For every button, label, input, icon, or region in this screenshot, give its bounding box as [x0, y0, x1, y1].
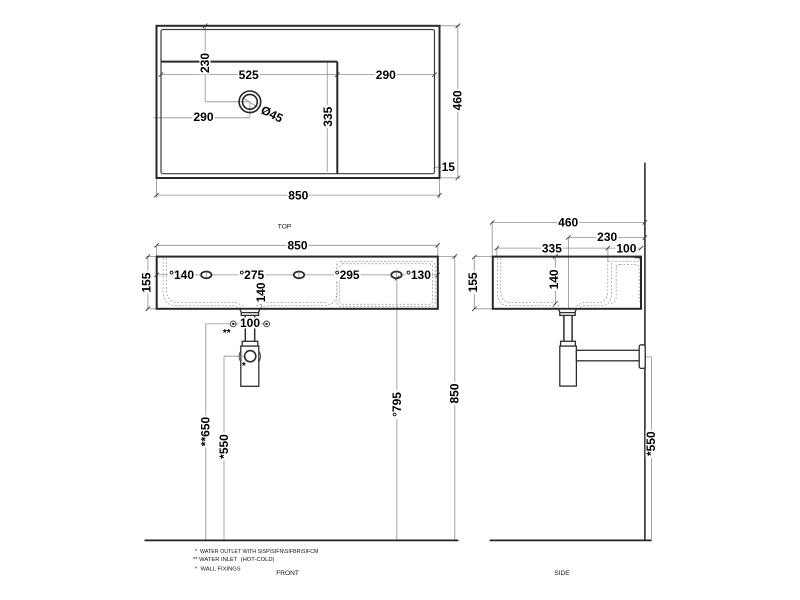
- svg-text:SIDE: SIDE: [554, 570, 570, 577]
- svg-text:°295: °295: [335, 268, 360, 282]
- svg-text:230: 230: [597, 230, 617, 244]
- svg-text:290: 290: [193, 110, 213, 124]
- svg-text:°140: °140: [169, 268, 194, 282]
- svg-text:TOP: TOP: [278, 224, 292, 231]
- svg-text:155: 155: [466, 272, 480, 292]
- svg-text:°795: °795: [390, 392, 404, 417]
- svg-text:460: 460: [451, 90, 465, 110]
- svg-text:100: 100: [616, 241, 636, 255]
- svg-text:°130: °130: [406, 268, 431, 282]
- svg-text:460: 460: [558, 216, 578, 230]
- svg-text:140: 140: [547, 269, 561, 289]
- svg-text:** WATER INLET (HOT-COLD): ** WATER INLET (HOT-COLD): [193, 557, 275, 563]
- svg-text:15: 15: [442, 160, 456, 174]
- svg-text:850: 850: [287, 239, 307, 253]
- svg-text:* WATER OUTLET WITH SISP\SIFN: * WATER OUTLET WITH SISP\SIFN\SIFBR\SIFC…: [195, 549, 319, 555]
- svg-text:850: 850: [448, 383, 462, 403]
- svg-text:850: 850: [288, 189, 308, 203]
- svg-text:*550: *550: [644, 431, 658, 456]
- svg-text:*550: *550: [217, 434, 231, 459]
- svg-text:335: 335: [321, 106, 335, 126]
- svg-text:**: **: [223, 328, 231, 339]
- svg-text:335: 335: [542, 241, 562, 255]
- svg-text:290: 290: [376, 68, 396, 82]
- svg-text:140: 140: [254, 282, 268, 302]
- svg-text:FRONT: FRONT: [276, 570, 299, 577]
- svg-text:155: 155: [140, 272, 154, 292]
- svg-text:*: *: [242, 361, 246, 372]
- svg-text:230: 230: [198, 53, 212, 73]
- svg-text:* WALL FIXINGS: * WALL FIXINGS: [195, 567, 241, 573]
- svg-text:100: 100: [240, 316, 260, 330]
- svg-text:**650: **650: [199, 417, 213, 447]
- svg-text:525: 525: [239, 68, 259, 82]
- svg-text:°275: °275: [239, 268, 264, 282]
